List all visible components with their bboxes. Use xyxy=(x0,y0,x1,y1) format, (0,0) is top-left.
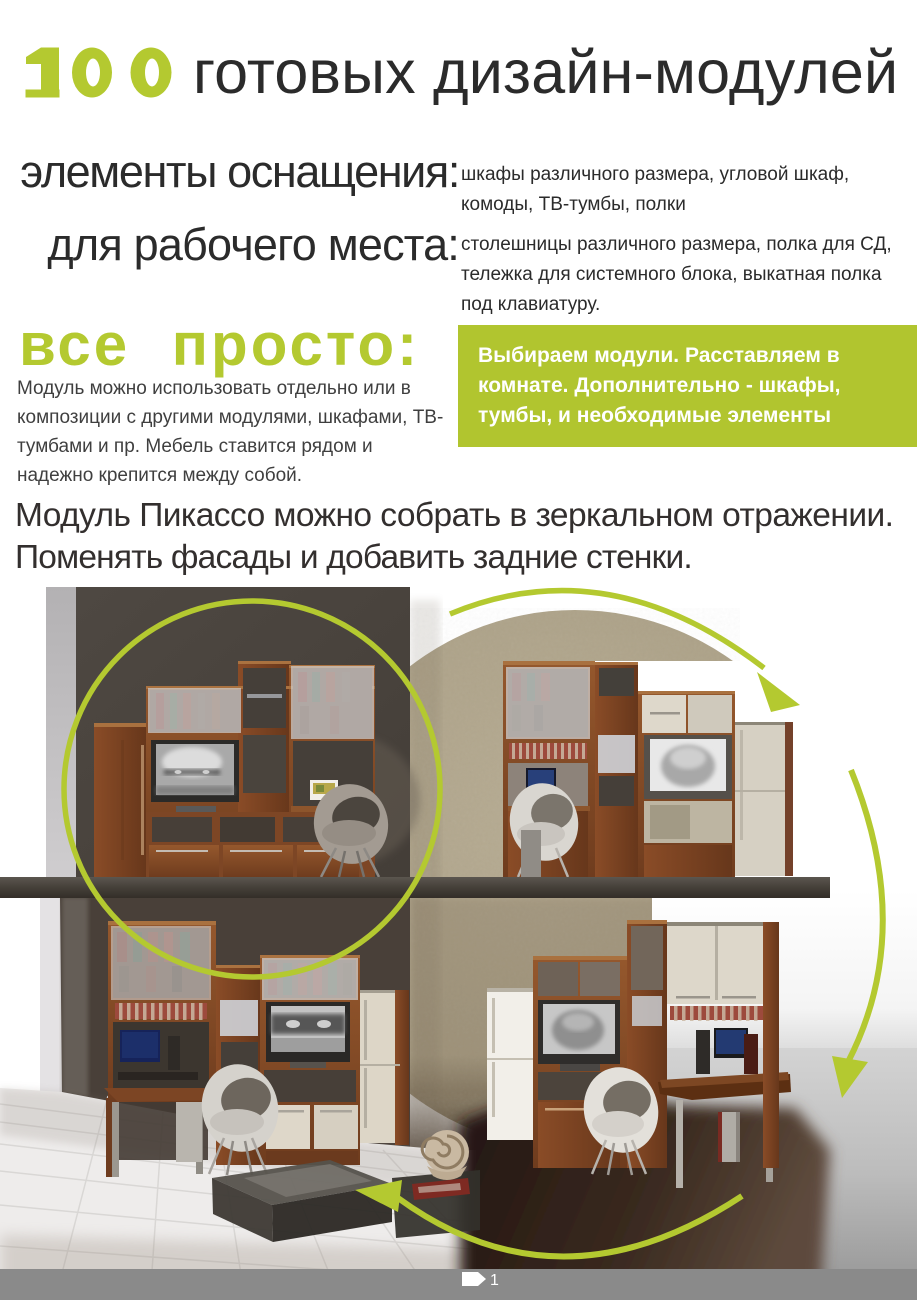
svg-text:1: 1 xyxy=(490,1272,499,1289)
